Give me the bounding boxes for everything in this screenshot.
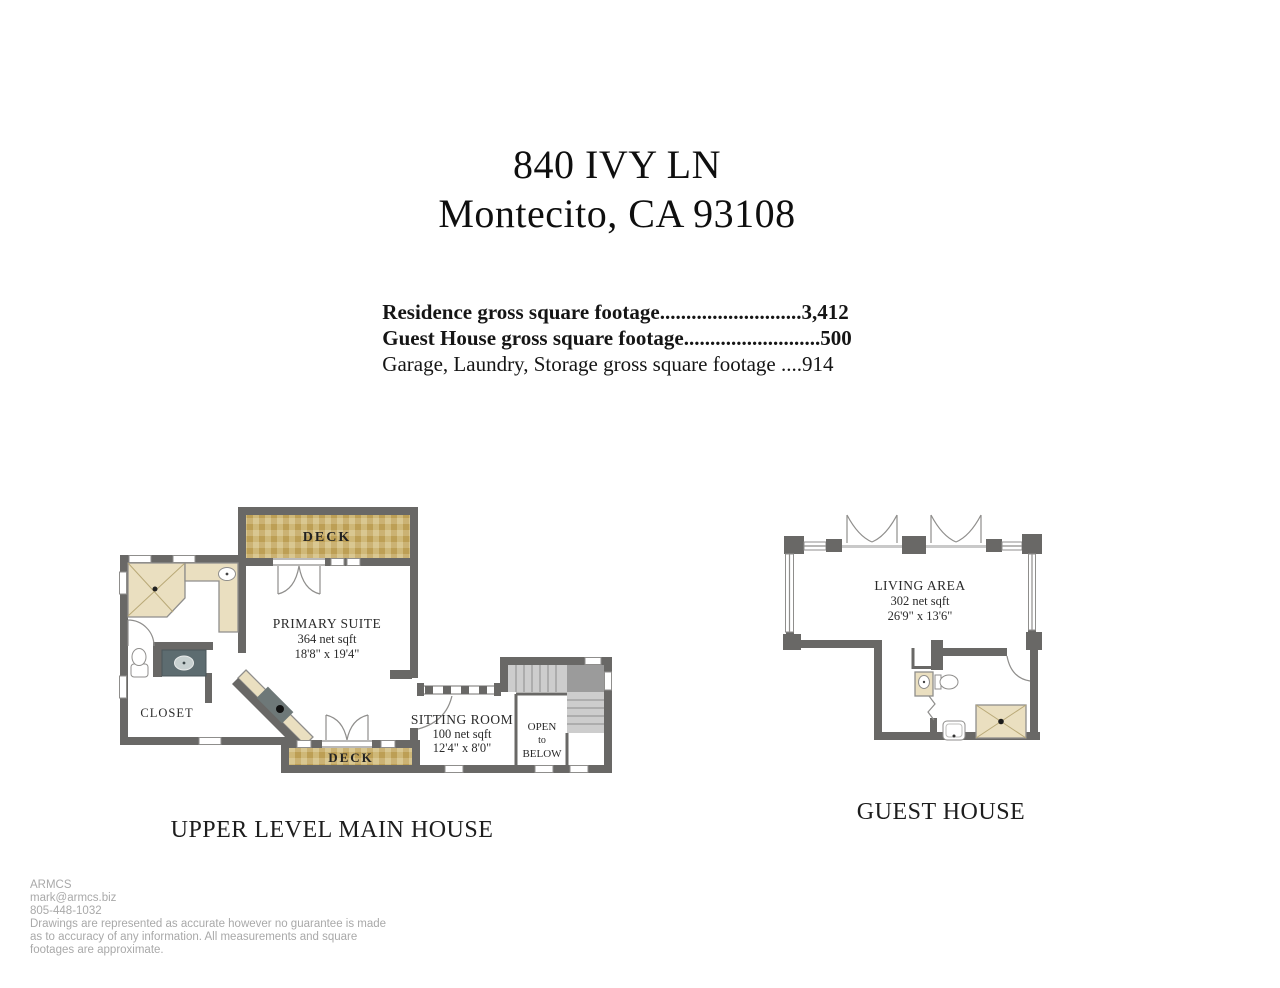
page-title: 840 IVY LN Montecito, CA 93108 (0, 140, 1234, 238)
guest-house-caption: GUEST HOUSE (857, 799, 1025, 826)
suite-top-wall (238, 558, 418, 594)
primary-suite-label: PRIMARY SUITE 364 net sqft 18'8" x 19'4" (273, 616, 381, 661)
wall-post (1026, 632, 1042, 650)
sitting-room-label: SITTING ROOM 100 net sqft 12'4" x 8'0" (411, 712, 513, 755)
svg-text:100 net sqft: 100 net sqft (432, 727, 492, 741)
svg-text:PRIMARY SUITE: PRIMARY SUITE (273, 616, 381, 631)
window-icon (120, 676, 127, 698)
wall-post (902, 536, 926, 554)
sitting-bottom-wall (413, 765, 612, 773)
guest-house-floor-plan: LIVING AREA 302 net sqft 26'9" x 13'6" (780, 508, 1050, 753)
address-line2: Montecito, CA 93108 (0, 189, 1234, 238)
window-icon (173, 556, 195, 563)
deck-top-label: DECK (303, 530, 351, 545)
svg-text:to: to (538, 735, 546, 746)
guest-sink-icon (943, 721, 965, 740)
window-icon (297, 741, 311, 748)
garage-sqft-line: Garage, Laundry, Storage gross square fo… (382, 351, 851, 377)
main-house-caption: UPPER LEVEL MAIN HOUSE (171, 817, 494, 844)
french-door-icon (326, 715, 368, 740)
living-area-label: LIVING AREA 302 net sqft 26'9" x 13'6" (874, 578, 965, 623)
door-arc (128, 620, 154, 646)
window-icon (199, 738, 221, 745)
preparer-info: ARMCS mark@armcs.biz 805-448-1032 Drawin… (30, 879, 386, 957)
guest-vanity-icon (915, 672, 933, 696)
open-to-below-label: OPEN to BELOW (522, 721, 562, 760)
square-footage-summary: Residence gross square footage..........… (0, 299, 1234, 377)
vanity-icon (162, 650, 206, 676)
window-icon (535, 766, 553, 773)
window-icon (331, 559, 344, 566)
company-email: mark@armcs.biz (30, 892, 386, 905)
svg-text:18'8" x 19'4": 18'8" x 19'4" (295, 647, 360, 661)
svg-text:BELOW: BELOW (522, 748, 562, 760)
svg-text:12'4" x 8'0": 12'4" x 8'0" (433, 741, 491, 755)
company-name: ARMCS (30, 879, 386, 892)
window-icon (347, 559, 360, 566)
window-icon (445, 766, 463, 773)
french-door-icon (278, 566, 320, 594)
svg-text:OPEN: OPEN (528, 721, 557, 733)
french-door-icon (847, 515, 897, 543)
guest-house-sqft-line: Guest House gross square footage........… (382, 325, 851, 351)
svg-text:SITTING ROOM: SITTING ROOM (411, 712, 513, 727)
guest-shower-icon (976, 705, 1026, 738)
closet-label: CLOSET (140, 706, 193, 720)
window-icon (605, 672, 612, 690)
disclaimer-line3: footages are approximate. (30, 944, 386, 957)
svg-text:26'9" x 13'6": 26'9" x 13'6" (888, 609, 953, 623)
window-band (417, 683, 501, 696)
guest-top-wall (784, 515, 1042, 554)
wall-post (986, 539, 1002, 552)
window-icon (381, 741, 395, 748)
svg-text:302 net sqft: 302 net sqft (890, 594, 950, 608)
door-arc (1007, 656, 1030, 681)
bath-counter-icon (185, 563, 238, 632)
window-icon (570, 766, 588, 773)
window-icon (120, 572, 127, 594)
address-line1: 840 IVY LN (0, 140, 1234, 189)
disclaimer-line2: as to accuracy of any information. All m… (30, 931, 386, 944)
deck-bottom-label: DECK (328, 750, 374, 765)
main-house-floor-plan: DECK (115, 500, 615, 785)
shower-icon (128, 563, 185, 617)
company-phone: 805-448-1032 (30, 905, 386, 918)
window-icon (585, 658, 601, 665)
guest-toilet-icon (935, 675, 958, 689)
wall-post (826, 539, 842, 552)
bifold-door-icon (928, 696, 935, 720)
disclaimer-line1: Drawings are represented as accurate how… (30, 918, 386, 931)
toilet-icon (131, 649, 148, 678)
svg-text:LIVING AREA: LIVING AREA (874, 578, 965, 593)
svg-text:364 net sqft: 364 net sqft (297, 632, 357, 646)
deck-top: DECK (238, 507, 418, 560)
french-door-icon (931, 515, 981, 543)
residence-sqft-line: Residence gross square footage..........… (382, 299, 851, 325)
window-icon (129, 556, 151, 563)
